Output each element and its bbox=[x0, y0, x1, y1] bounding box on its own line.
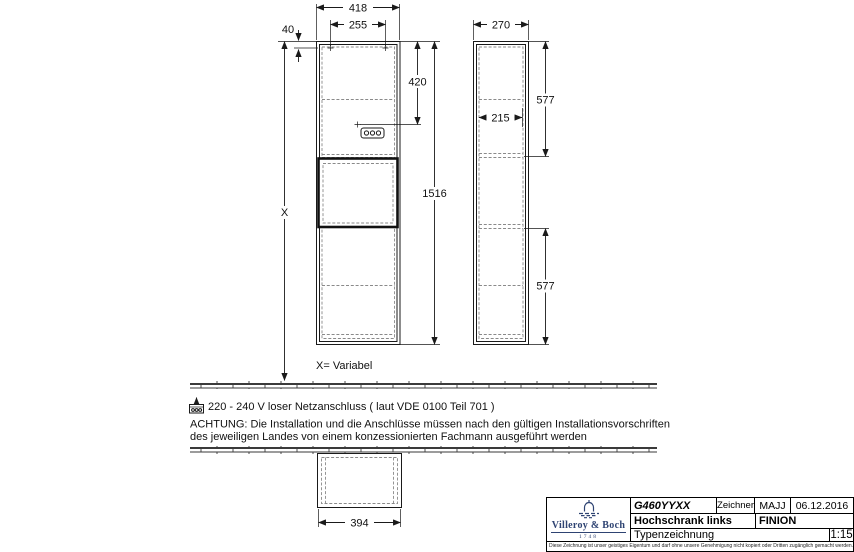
dim-inner-depth-label: 215 bbox=[491, 113, 509, 125]
copyright-note: Diese Zeichnung ist unser geistiges Eige… bbox=[547, 541, 853, 551]
technical-drawing-page: 418 255 40 420 1516 X bbox=[0, 0, 854, 552]
dim-depth-label: 270 bbox=[492, 20, 510, 32]
warning-note-line1: ACHTUNG: Die Installation und die Anschl… bbox=[190, 419, 670, 431]
top-view-outline bbox=[318, 454, 402, 508]
brand-year: 1748 bbox=[579, 534, 598, 540]
cell-drawing-type: Typenzeichnung bbox=[631, 529, 829, 541]
cell-article-number: G460YYXX bbox=[631, 498, 716, 513]
cell-scale: 1:15 bbox=[829, 529, 853, 541]
dim-total-height-label: 1516 bbox=[422, 188, 446, 200]
power-note: 220 - 240 V loser Netzanschluss ( laut V… bbox=[208, 401, 495, 413]
dim-lower-section-label: 577 bbox=[536, 281, 554, 293]
top-view: 394 bbox=[318, 454, 402, 530]
dim-hole-offset-label: 40 bbox=[282, 24, 294, 36]
dim-socket-height-label: 420 bbox=[408, 77, 426, 89]
brand-logo-icon bbox=[574, 499, 604, 519]
title-block: Villeroy & Boch 1748 G460YYXX Zeichner M… bbox=[546, 497, 854, 552]
cell-drafter-name: MAJJ bbox=[754, 498, 790, 513]
warning-note-line2: des jeweiligen Landes von einem konzessi… bbox=[190, 431, 587, 443]
drawing-canvas: 418 255 40 420 1516 X bbox=[0, 0, 854, 552]
open-shelf-compartment bbox=[319, 159, 398, 228]
brand-logo: Villeroy & Boch 1748 bbox=[547, 498, 631, 541]
variable-note: X= Variabel bbox=[316, 360, 372, 372]
dim-hole-spacing-label: 255 bbox=[349, 20, 367, 32]
cell-series-name: FINION bbox=[755, 514, 853, 528]
plug-icon bbox=[190, 398, 204, 414]
wall-section-lower bbox=[190, 446, 657, 454]
cell-product-name: Hochschrank links bbox=[631, 514, 755, 528]
front-view bbox=[317, 42, 401, 345]
side-view-outline bbox=[474, 42, 529, 345]
dim-plan-width-label: 394 bbox=[350, 518, 368, 530]
cell-date: 06.12.2016 bbox=[790, 498, 853, 513]
wall-section-upper bbox=[190, 381, 657, 389]
dim-upper-section-label: 577 bbox=[536, 95, 554, 107]
dim-front-width-label: 418 bbox=[349, 3, 367, 15]
side-view bbox=[474, 42, 529, 345]
brand-name: Villeroy & Boch bbox=[551, 520, 626, 533]
cell-drafter-label: Zeichner bbox=[716, 498, 754, 513]
dim-wall-distance-label: X bbox=[281, 207, 289, 219]
